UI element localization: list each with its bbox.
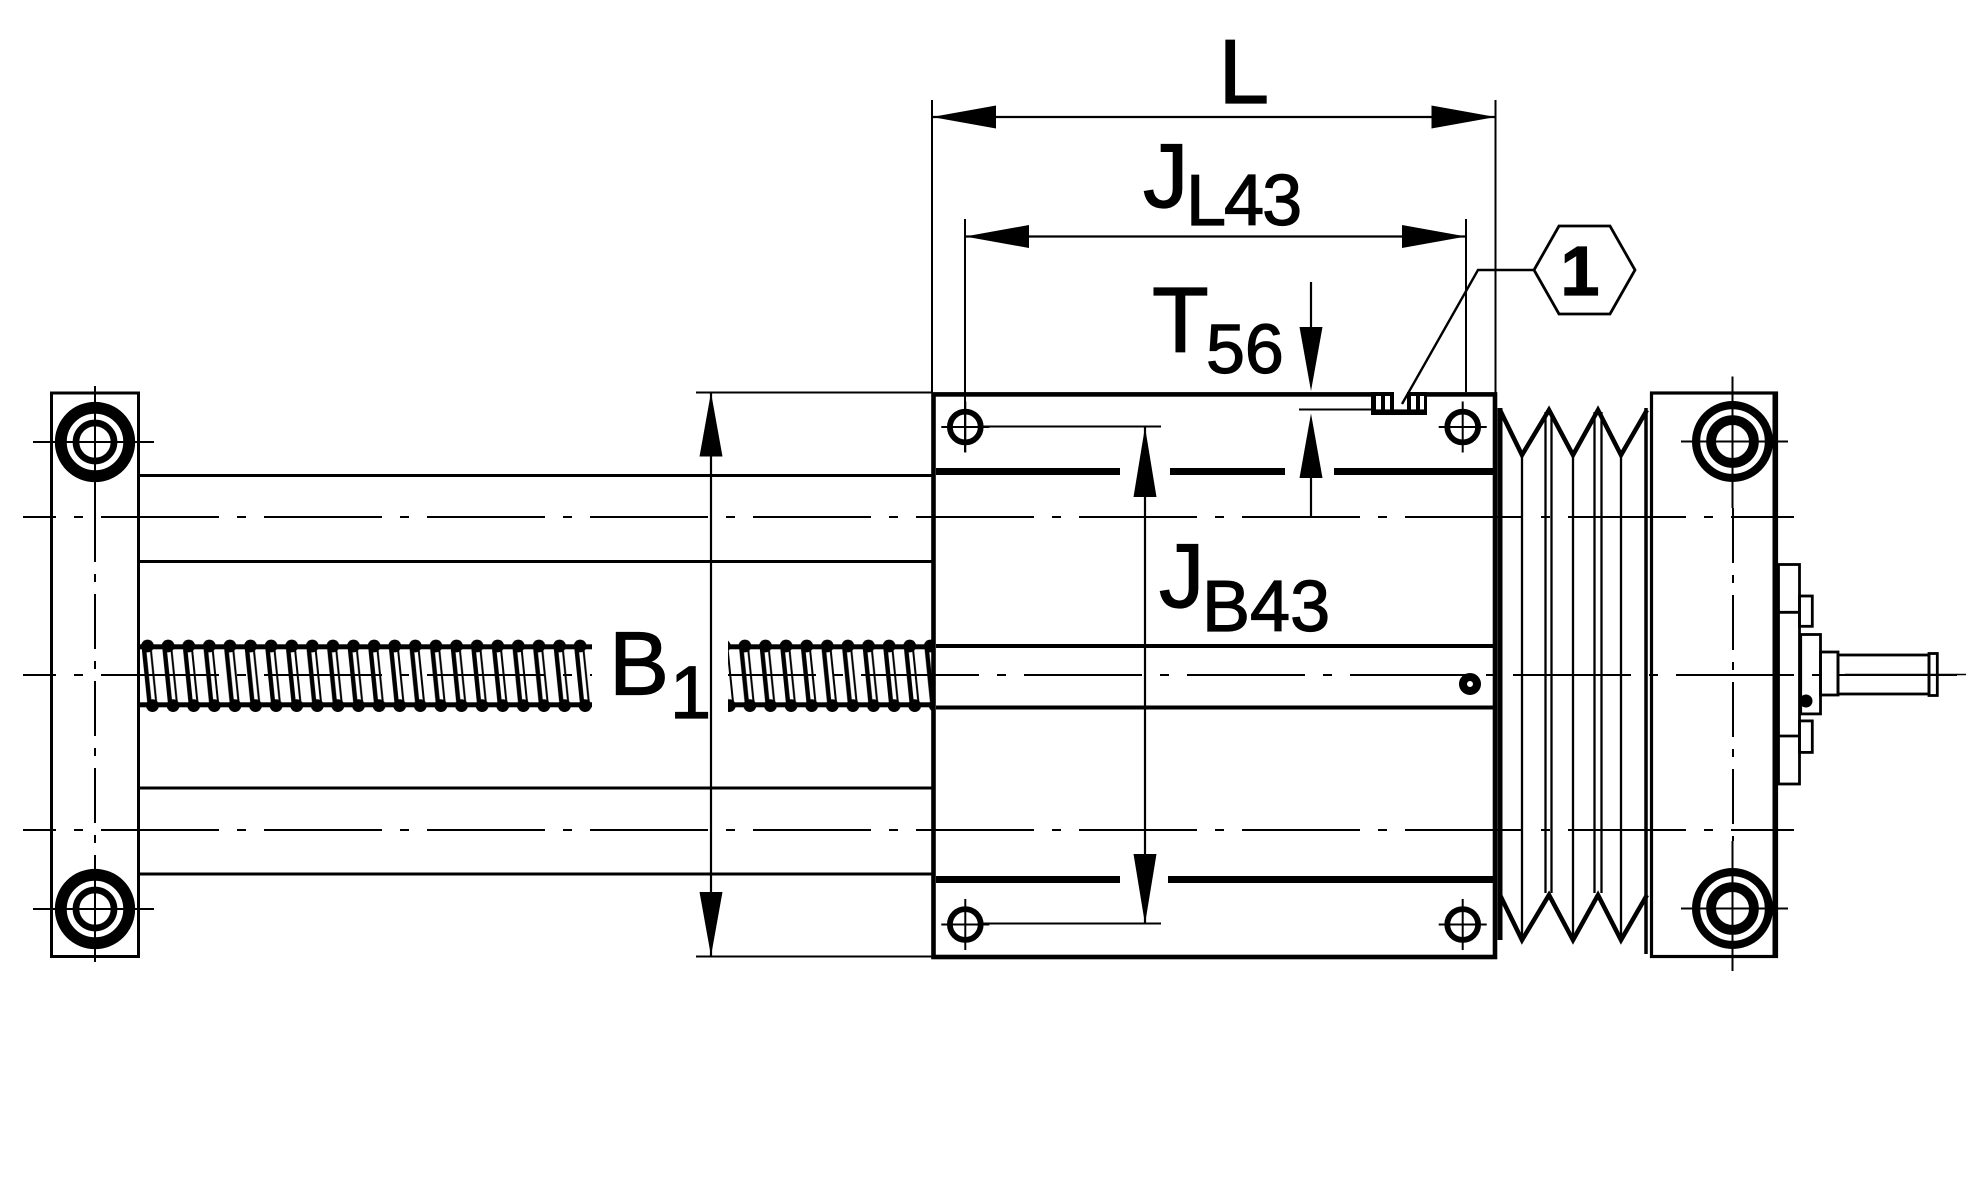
svg-text:L43: L43 [1186,161,1300,241]
svg-text:L: L [1219,22,1270,123]
svg-text:56: 56 [1206,310,1284,388]
svg-text:T: T [1152,268,1209,372]
svg-text:J: J [1143,126,1189,227]
svg-text:B: B [609,615,669,715]
svg-text:B43: B43 [1202,567,1330,647]
svg-text:J: J [1159,526,1205,627]
svg-text:1: 1 [1561,232,1600,310]
svg-text:1: 1 [670,651,711,734]
